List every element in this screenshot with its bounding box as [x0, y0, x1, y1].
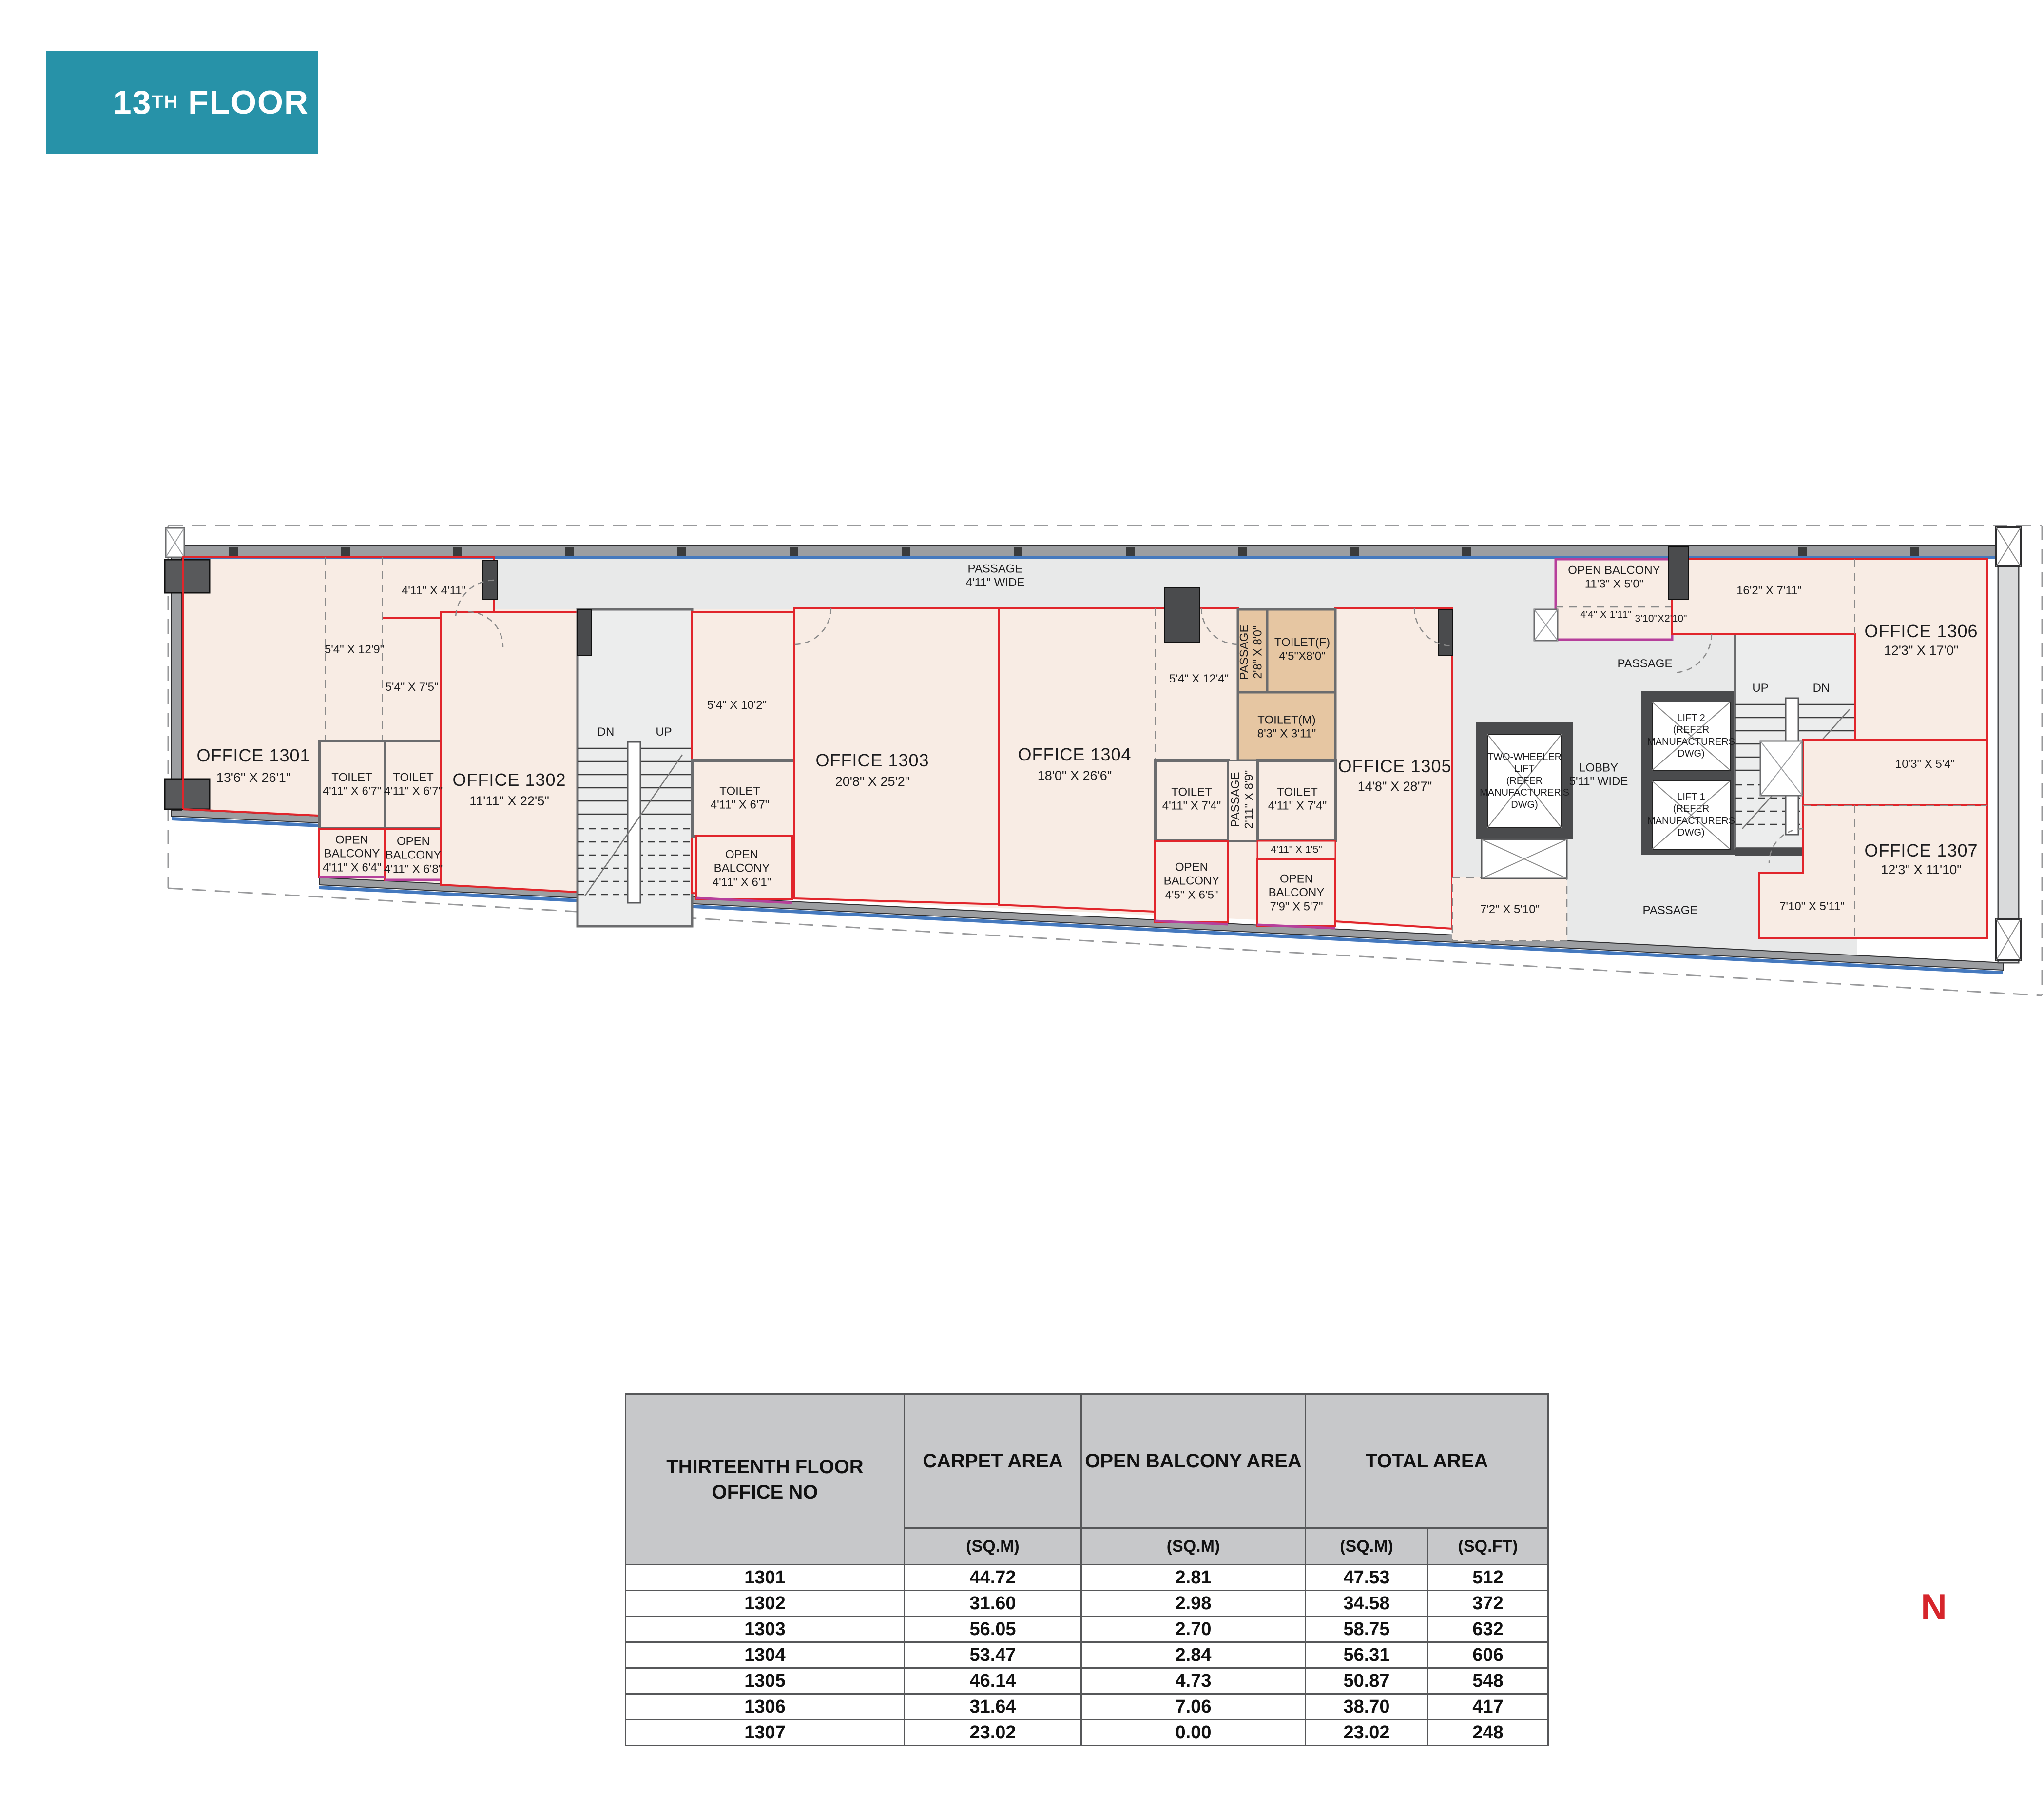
floor-number: 13 [113, 83, 152, 121]
col-header-total: TOTAL AREA [1306, 1394, 1548, 1528]
col-header-carpet: CARPET AREA [905, 1394, 1081, 1528]
cell-total-sqft: 606 [1428, 1642, 1548, 1668]
passage-right-top-label: PASSAGE [1618, 657, 1673, 671]
floor-plan-page: 13THFLOOR [0, 0, 2044, 1793]
dim-10-3x5-4: 10'3" X 5'4" [1895, 758, 1955, 771]
balcony-1303: OPEN BALCONY 4'11" X 6'1" [713, 848, 771, 890]
passage-v2-label: PASSAGE 2'11" X 8'9" [1229, 770, 1257, 829]
unit-balcony-sqm: (SQ.M) [1081, 1528, 1306, 1565]
cell-total-sqft: 548 [1428, 1668, 1548, 1694]
floor-title-banner: 13THFLOOR [46, 51, 318, 154]
lift-1-label: LIFT 1 (REFER MANUFACTURERS DWG) [1647, 791, 1735, 839]
dim-5-4x10-2: 5'4" X 10'2" [707, 699, 767, 712]
toilet-female: TOILET(F) 4'5"X8'0" [1274, 636, 1330, 664]
table-row: 1302 31.60 2.98 34.58 372 [626, 1591, 1548, 1617]
table-row: 1303 56.05 2.70 58.75 632 [626, 1617, 1548, 1642]
dim-3-10x2-10: 3'10"X2'10" [1635, 613, 1687, 625]
toilet-1305: TOILET 4'11" X 7'4" [1268, 786, 1327, 814]
stairs-left [578, 609, 692, 926]
cell-total-sqm: 34.58 [1306, 1591, 1428, 1617]
cell-total-sqft: 417 [1428, 1694, 1548, 1720]
cell-total-sqft: 632 [1428, 1617, 1548, 1642]
balcony-1305: OPEN BALCONY 7'9" X 5'7" [1269, 873, 1325, 914]
cell-balcony: 0.00 [1081, 1720, 1306, 1746]
dim-5-4x12-9: 5'4" X 12'9" [325, 643, 384, 657]
toilet-1301-b: TOILET 4'11" X 6'7" [384, 771, 443, 799]
dim-4-4x1-11: 4'4" X 1'11" [1580, 609, 1631, 622]
dim-7-2x5-10: 7'2" X 5'10" [1480, 903, 1540, 916]
cell-total-sqm: 50.87 [1306, 1668, 1428, 1694]
lobby-label: LOBBY 5'11" WIDE [1569, 761, 1628, 789]
cell-office: 1307 [626, 1720, 905, 1746]
right-wall [1996, 527, 2021, 963]
top-passage-zone [494, 559, 1556, 609]
toilet-1301-a: TOILET 4'11" X 6'7" [323, 771, 382, 799]
col-header-office-no: THIRTEENTH FLOOR OFFICE NO [626, 1394, 905, 1565]
cell-total-sqm: 58.75 [1306, 1617, 1428, 1642]
stairs-right-dn-label: DN [1813, 682, 1830, 695]
office-1305-label: OFFICE 1305 [1338, 756, 1451, 777]
cell-total-sqft: 512 [1428, 1565, 1548, 1591]
unit-total-sqft: (SQ.FT) [1428, 1528, 1548, 1565]
office-1304-label: OFFICE 1304 [1018, 744, 1131, 765]
compass-north-label: N [1921, 1586, 1947, 1628]
table-row: 1301 44.72 2.81 47.53 512 [626, 1565, 1548, 1591]
dim-4-11x4-11: 4'11" X 4'11" [402, 584, 466, 598]
cell-office: 1305 [626, 1668, 905, 1694]
toilet-1303: TOILET 4'11" X 6'7" [711, 785, 770, 813]
area-table: THIRTEENTH FLOOR OFFICE NO CARPET AREA O… [625, 1393, 1549, 1746]
cell-office: 1302 [626, 1591, 905, 1617]
unit-carpet-sqm: (SQ.M) [905, 1528, 1081, 1565]
cell-carpet: 44.72 [905, 1565, 1081, 1591]
cell-office: 1306 [626, 1694, 905, 1720]
cell-total-sqft: 248 [1428, 1720, 1548, 1746]
office-1303-dims: 20'8" X 25'2" [835, 774, 910, 790]
office-1307-label: OFFICE 1307 [1864, 840, 1978, 861]
cell-carpet: 23.02 [905, 1720, 1081, 1746]
cell-total-sqm: 56.31 [1306, 1642, 1428, 1668]
cell-office: 1303 [626, 1617, 905, 1642]
cell-office: 1301 [626, 1565, 905, 1591]
cell-balcony: 2.98 [1081, 1591, 1306, 1617]
office-1302-outline [441, 612, 578, 892]
office-1303-label: OFFICE 1303 [815, 750, 929, 771]
dim-5-4x12-4: 5'4" X 12'4" [1169, 672, 1229, 686]
cell-balcony: 4.73 [1081, 1668, 1306, 1694]
cell-total-sqm: 38.70 [1306, 1694, 1428, 1720]
cell-carpet: 31.60 [905, 1591, 1081, 1617]
cell-total-sqm: 23.02 [1306, 1720, 1428, 1746]
office-1306-label: OFFICE 1306 [1864, 621, 1978, 642]
dim-5-4x7-5: 5'4" X 7'5" [386, 681, 439, 694]
stairs-left-dn-label: DN [598, 725, 615, 739]
office-1302-label: OFFICE 1302 [452, 770, 566, 790]
two-wheeler-lift-label: TWO-WHEELER LIFT (REFER MANUFACTURER'S D… [1480, 751, 1569, 811]
col-header-balcony: OPEN BALCONY AREA [1081, 1394, 1306, 1528]
floor-word: FLOOR [188, 83, 309, 121]
table-row: 1304 53.47 2.84 56.31 606 [626, 1642, 1548, 1668]
office-1301-label: OFFICE 1301 [196, 745, 310, 766]
balcony-1301-a: OPEN BALCONY 4'11" X 6'4" [323, 834, 382, 875]
floor-plan-drawing [0, 0, 2044, 1048]
cell-carpet: 46.14 [905, 1668, 1081, 1694]
cell-office: 1304 [626, 1642, 905, 1668]
cell-carpet: 31.64 [905, 1694, 1081, 1720]
dim-7-10x5-11: 7'10" X 5'11" [1779, 900, 1845, 914]
table-row: 1307 23.02 0.00 23.02 248 [626, 1720, 1548, 1746]
cell-balcony: 2.84 [1081, 1642, 1306, 1668]
office-1302-dims: 11'11" X 22'5" [469, 794, 549, 809]
cell-total-sqm: 47.53 [1306, 1565, 1428, 1591]
passage-right-bottom-label: PASSAGE [1643, 904, 1698, 917]
passage-v1-label: PASSAGE 2'8" X 8'0" [1238, 625, 1266, 680]
cell-carpet: 56.05 [905, 1617, 1081, 1642]
toilet-1304: TOILET 4'11" X 7'4" [1162, 786, 1221, 814]
table-row: 1306 31.64 7.06 38.70 417 [626, 1694, 1548, 1720]
office-1301-dims: 13'6" X 26'1" [216, 770, 291, 786]
table-row: 1305 46.14 4.73 50.87 548 [626, 1668, 1548, 1694]
toilet-male: TOILET(M) 8'3" X 3'11" [1257, 714, 1316, 741]
lift-2-label: LIFT 2 (REFER MANUFACTURERS DWG) [1647, 712, 1735, 760]
unit-total-sqm: (SQ.M) [1306, 1528, 1428, 1565]
cell-balcony: 2.81 [1081, 1565, 1306, 1591]
office-1307-dims: 12'3" X 11'10" [1881, 862, 1962, 878]
balcony-1306: OPEN BALCONY 11'3" X 5'0" [1568, 564, 1660, 592]
cell-balcony: 2.70 [1081, 1617, 1306, 1642]
office-1304-dims: 18'0" X 26'6" [1038, 768, 1112, 784]
cell-total-sqft: 372 [1428, 1591, 1548, 1617]
cell-carpet: 53.47 [905, 1642, 1081, 1668]
office-1306-dims: 12'3" X 17'0" [1884, 643, 1959, 659]
balcony-1304: OPEN BALCONY 4'5" X 6'5" [1164, 861, 1220, 902]
office-1305-dims: 14'8" X 28'7" [1358, 779, 1432, 795]
passage-top-label: PASSAGE 4'11" WIDE [966, 563, 1025, 590]
cell-balcony: 7.06 [1081, 1694, 1306, 1720]
dim-16-2x7-11: 16'2" X 7'11" [1736, 584, 1802, 598]
balcony-1301-b: OPEN BALCONY 4'11" X 6'8" [384, 835, 443, 877]
stairs-left-up-label: UP [656, 725, 672, 739]
stairs-right-up-label: UP [1752, 682, 1768, 695]
dim-4-11x1-5: 4'11" X 1'5" [1271, 844, 1322, 857]
